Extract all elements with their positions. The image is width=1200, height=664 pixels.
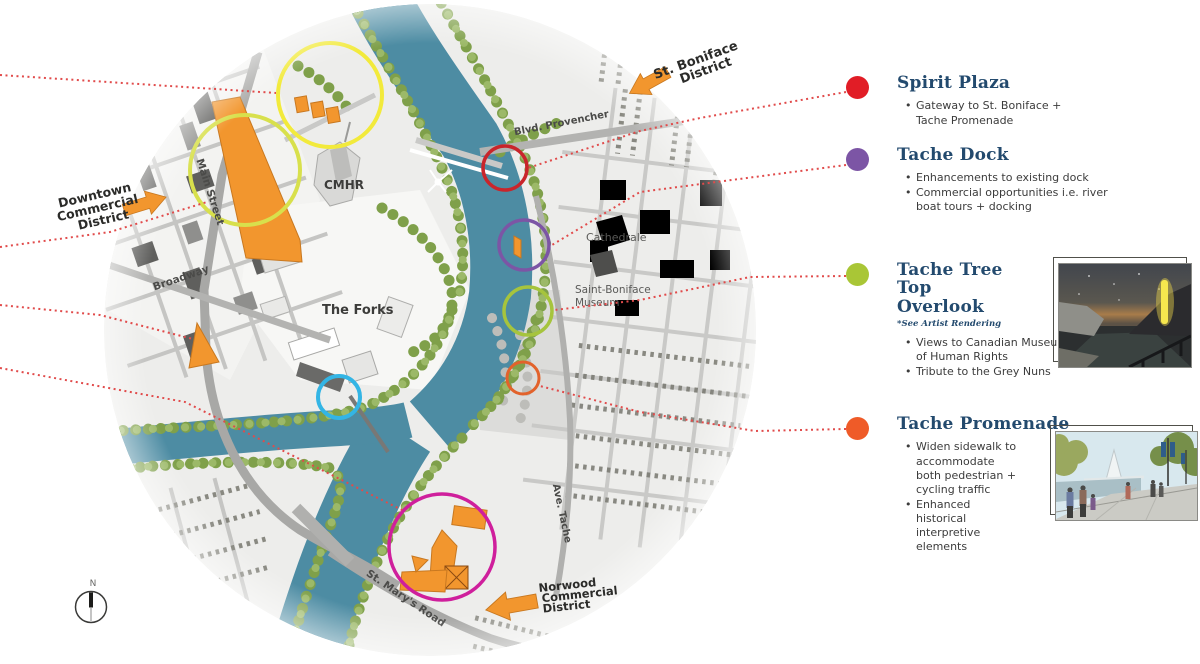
tache-promenade-bullet: Enhanced historical interpretive element… bbox=[905, 498, 1017, 555]
artist-rendering-note: *See Artist Rendering bbox=[897, 319, 1072, 329]
tache-overlook-rendering bbox=[1058, 263, 1192, 368]
tache-promenade-title: Tache Promenade bbox=[897, 415, 1047, 433]
map-vignette bbox=[104, 4, 756, 656]
spirit-plaza-bullet: Gateway to St. Boniface + Tache Promenad… bbox=[905, 99, 1065, 128]
tache-promenade-bullet: Widen sidewalk to accommodate both pedes… bbox=[905, 440, 1017, 497]
compass-label: N bbox=[90, 579, 97, 589]
tache-dock-bullet: Enhancements to existing dock bbox=[905, 171, 1123, 185]
tache-overlook-bullet: Tribute to the Grey Nuns bbox=[905, 365, 1070, 379]
tache-promenade-dot bbox=[846, 417, 869, 440]
tache-overlook-bullet: Views to Canadian Museum of Human Rights bbox=[905, 336, 1070, 365]
tache-dock-dot bbox=[846, 148, 869, 171]
tache-dock-bullet: Commercial opportunities i.e. river boat… bbox=[905, 186, 1123, 215]
tache-overlook-dot bbox=[846, 263, 869, 286]
tache-overlook-title: Tache Tree Top Overlook bbox=[897, 261, 1015, 316]
spirit-plaza-title: Spirit Plaza bbox=[897, 74, 1072, 92]
tache-dock-title: Tache Dock bbox=[897, 146, 1127, 164]
spirit-plaza-dot bbox=[846, 76, 869, 99]
st-boniface-district-label: St. Boniface District bbox=[652, 38, 745, 95]
planning-map-page: CMHR The Forks Cathedrale Saint-Boniface… bbox=[0, 0, 1200, 664]
compass: N bbox=[76, 579, 107, 623]
tache-promenade-photo bbox=[1055, 431, 1198, 521]
compass-needle bbox=[89, 593, 93, 608]
